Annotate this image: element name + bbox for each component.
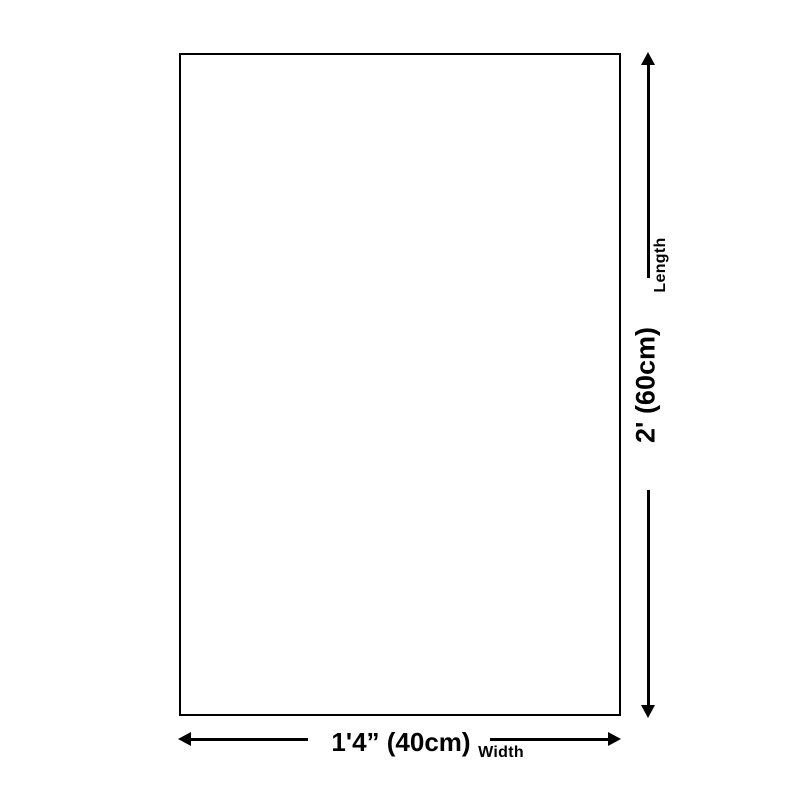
length-arrow-down-icon — [641, 705, 655, 718]
length-arrow-line-top — [647, 63, 650, 278]
length-arrow-line-bottom — [647, 490, 650, 706]
width-arrow-line-right — [490, 738, 609, 741]
width-value-label: 1'4” (40cm) — [331, 729, 470, 755]
width-arrow-right-icon — [608, 732, 621, 746]
length-value-label: 2' (60cm) — [633, 327, 660, 443]
width-arrow-line-left — [189, 738, 308, 741]
product-outline-rectangle — [179, 53, 621, 716]
length-axis-label: Length — [653, 237, 669, 292]
width-axis-label: Width — [478, 745, 524, 761]
product-dimension-diagram: Length 2' (60cm) 1'4” (40cm) Width — [0, 0, 800, 800]
